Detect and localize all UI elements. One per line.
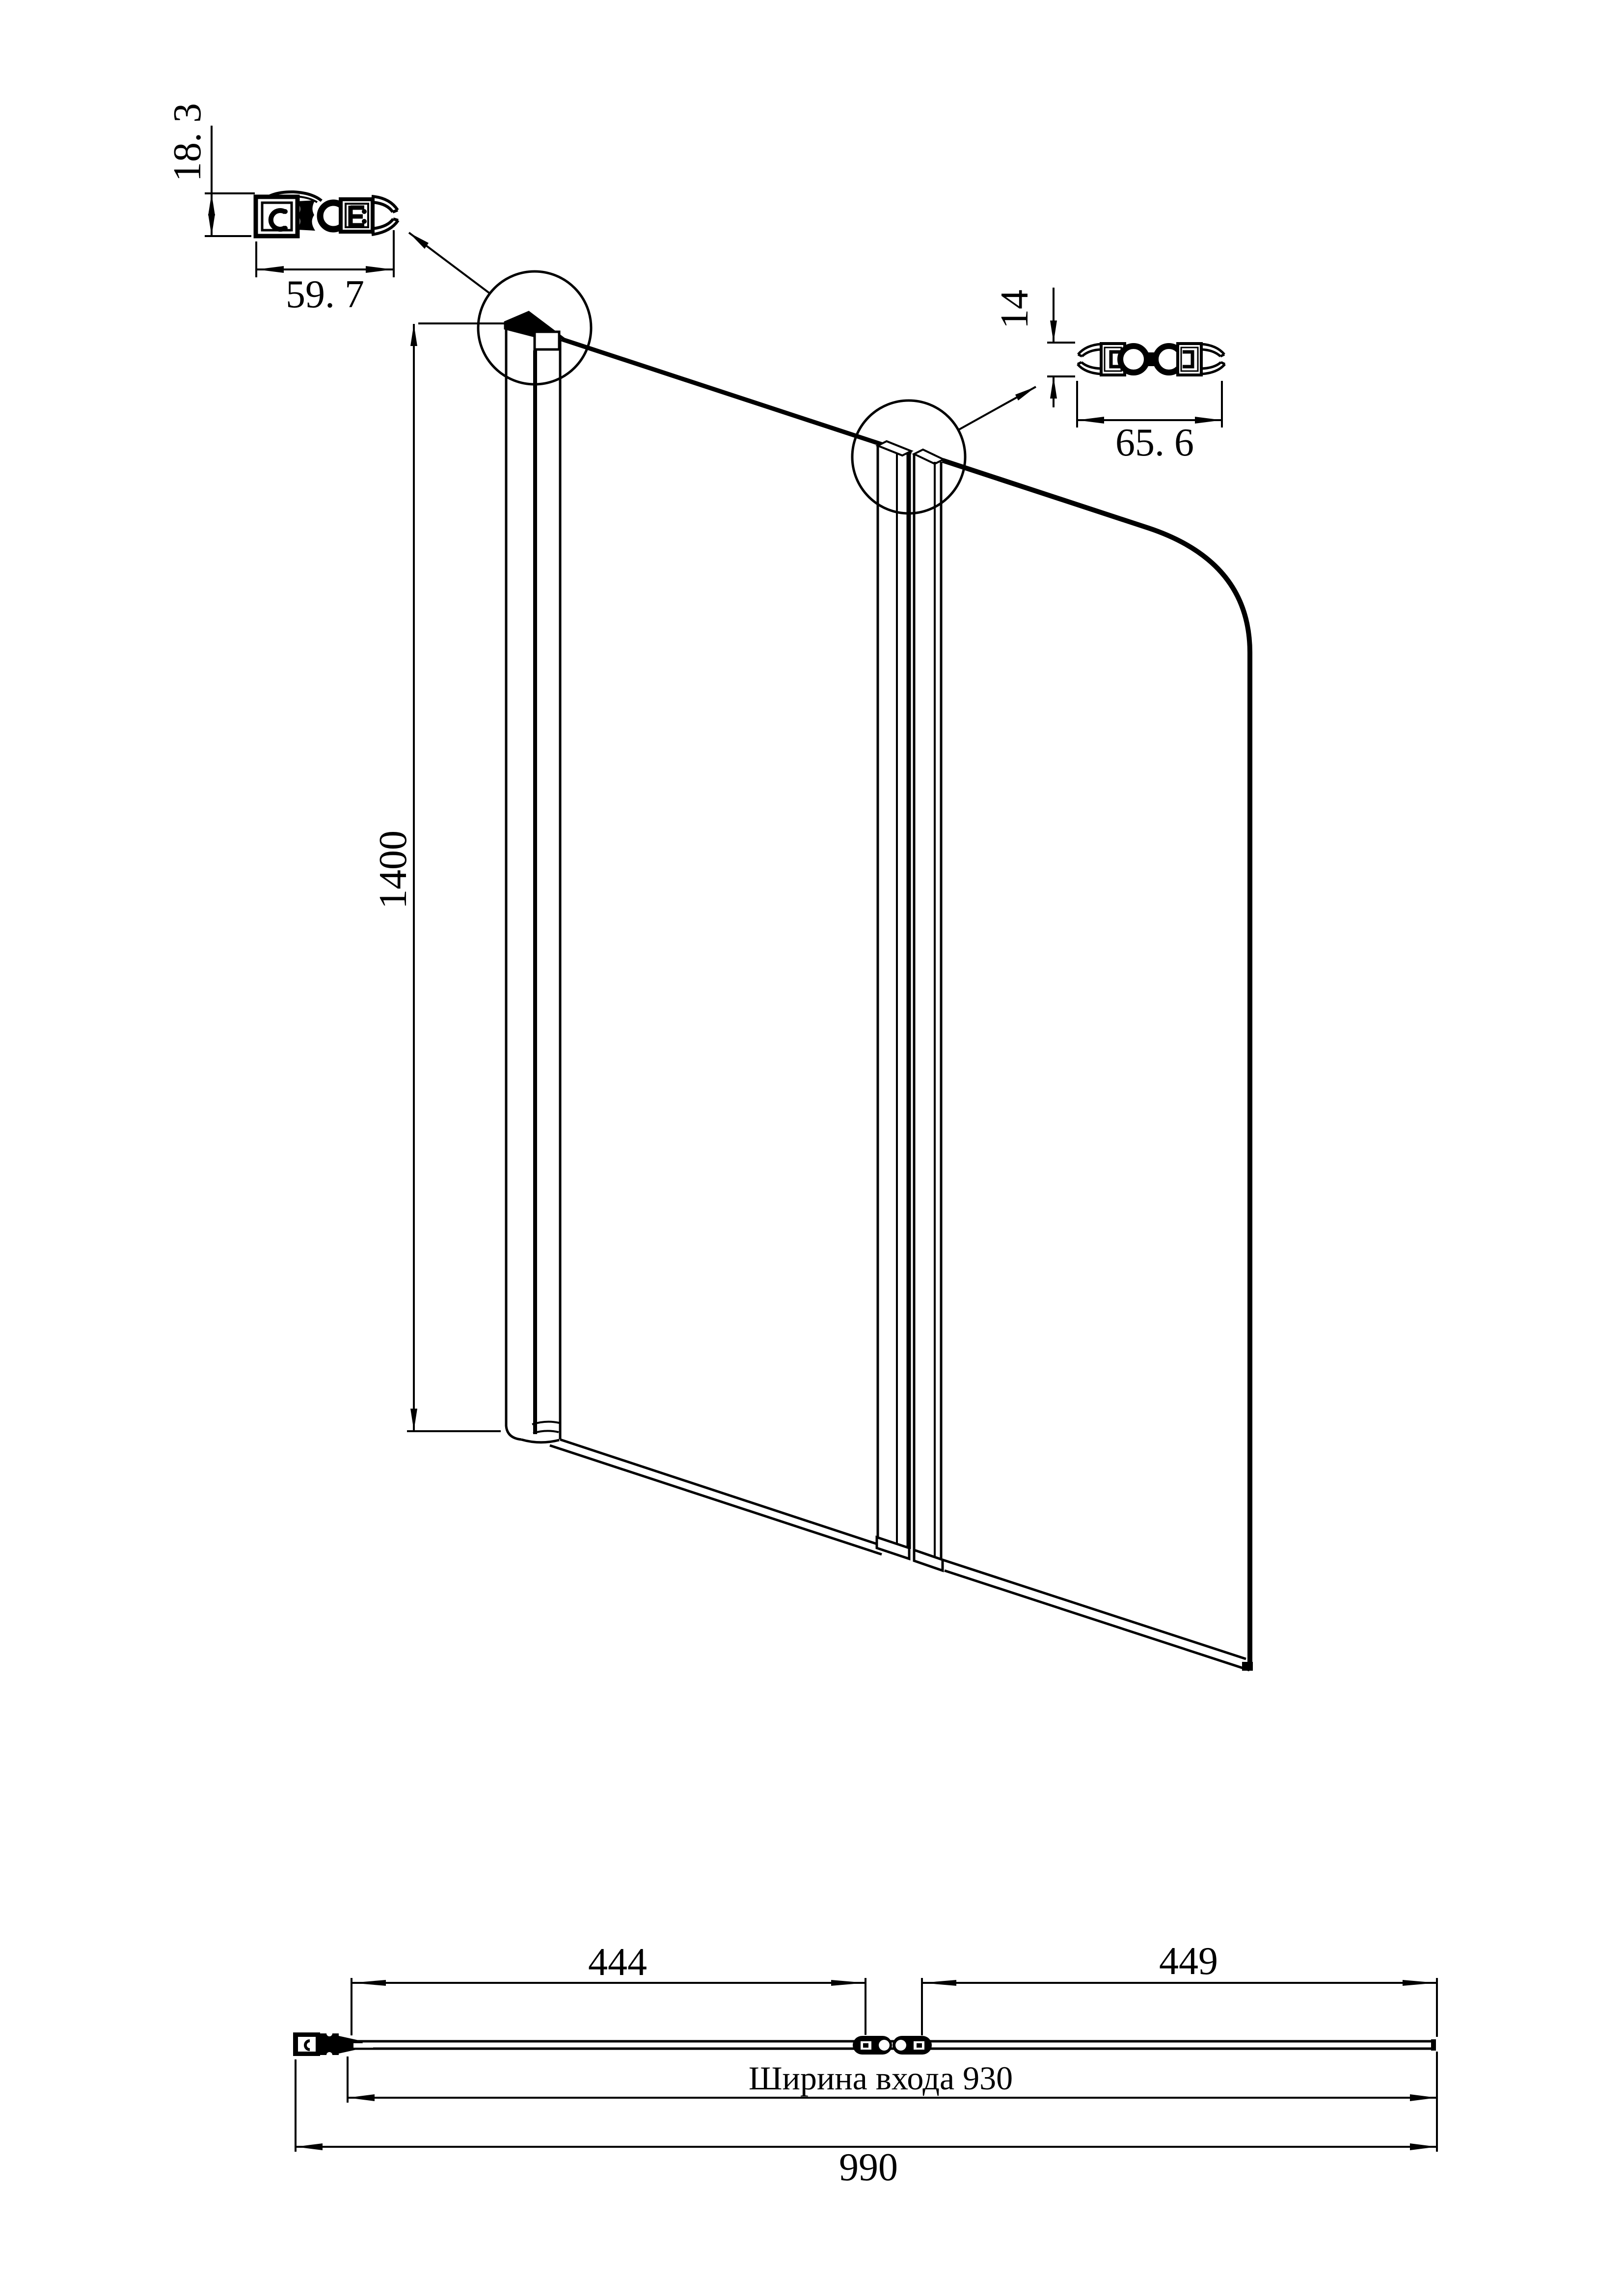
svg-text:1400: 1400: [372, 830, 415, 909]
svg-text:444: 444: [588, 1941, 647, 1984]
svg-text:65. 6: 65. 6: [1115, 421, 1194, 464]
svg-text:59. 7: 59. 7: [286, 273, 364, 316]
svg-text:Ширина входа 930: Ширина входа 930: [749, 2059, 1013, 2097]
svg-text:449: 449: [1159, 1940, 1218, 1983]
svg-text:18. 3: 18. 3: [166, 103, 209, 182]
svg-text:990: 990: [839, 2146, 898, 2189]
svg-text:14: 14: [993, 290, 1036, 329]
